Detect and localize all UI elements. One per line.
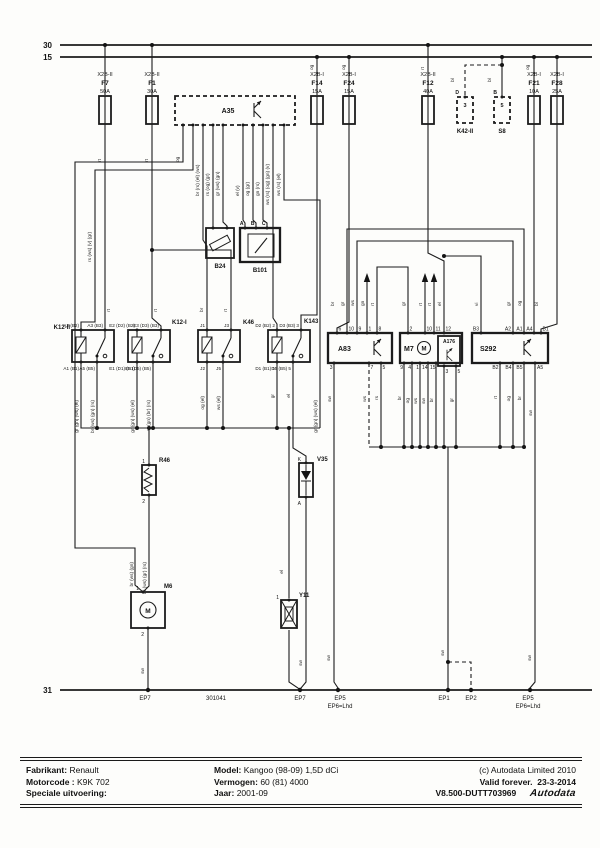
fuse-rating: 15A xyxy=(312,89,322,95)
pin-label: D3 (B3) 3 xyxy=(279,323,299,328)
component-id: M6 xyxy=(164,584,173,590)
pin-label: A1 xyxy=(516,327,522,333)
wire-color-label: el xyxy=(286,394,292,398)
pin-label: 1 xyxy=(142,459,145,465)
wire-color-label: og xyxy=(310,64,315,70)
wire-color-label: ws (rs) (og) (gn) (v) xyxy=(265,164,271,205)
wire-color-label: sw xyxy=(141,667,146,673)
fuse-id: F7 xyxy=(101,80,109,87)
version-text: V8.500-DUTT703969 xyxy=(435,788,516,798)
relay-box xyxy=(128,330,170,362)
pin-label: B5 xyxy=(516,365,522,371)
relay-box xyxy=(457,97,473,123)
pin-label: 2 xyxy=(142,499,145,505)
model-label: Model: xyxy=(214,765,241,775)
pin-label: 9 xyxy=(359,327,362,333)
pin-label: B1 xyxy=(543,327,549,333)
wire-color-label: vi (gn) (br) (rs) xyxy=(146,400,152,431)
ground-label: EP7 xyxy=(294,696,306,702)
wire-color-label: rs (ws) (v) (gr) xyxy=(87,231,93,262)
ground-label: EP5 xyxy=(334,696,346,702)
model-value: Kangoo (98-09) 1,5D dCi xyxy=(244,765,339,775)
wire-color-label: bl xyxy=(450,78,456,82)
pin-tag: D xyxy=(455,90,459,96)
wire-color-label: og xyxy=(342,64,347,70)
component-id: B101 xyxy=(253,268,268,274)
fuse-F28: X2B-I F28 25A xyxy=(550,72,564,124)
pin-label: E2 (D2) (B2) xyxy=(109,323,135,328)
pin-label: 4 xyxy=(408,365,411,371)
wire-color-label: br xyxy=(429,398,435,403)
resistor-zigzag-icon xyxy=(144,468,152,492)
pin-label: 1 xyxy=(136,586,139,592)
pin-label: 5 xyxy=(383,365,386,371)
wire-color-label: sw xyxy=(328,395,333,401)
pin-label: A5 xyxy=(537,365,543,371)
component-s292: S292 B3 A2 A1 A4 B1 B2 B4 B5 A5 xyxy=(472,327,549,372)
component-k42-ii: D 3 K42-II xyxy=(455,90,473,135)
pin-label: J3 xyxy=(224,323,229,328)
pin-label: A2 xyxy=(505,327,511,333)
wire-color-label: bl xyxy=(487,78,493,82)
pin-label: A xyxy=(240,221,244,227)
valve-x-icon xyxy=(281,600,297,628)
connector-label: X2B-I xyxy=(310,72,324,78)
fuse-rating: 50A xyxy=(100,89,110,95)
pin-label: 1 xyxy=(276,595,279,601)
wire xyxy=(81,362,320,690)
wire-color-label: og xyxy=(518,300,523,306)
component-id: S8 xyxy=(498,129,506,135)
fuse-rating: 25A xyxy=(552,89,562,95)
wire-color-label: br xyxy=(199,307,205,312)
component-r46: 1 2 R46 xyxy=(142,458,171,505)
component-s8: B 5 S8 xyxy=(493,90,510,135)
component-id: S292 xyxy=(480,346,496,353)
sensor-box xyxy=(206,228,234,258)
title-block-model: Model: Kangoo (98-09) 1,5D dCi Vermogen:… xyxy=(214,765,406,800)
fuse-id: F21 xyxy=(528,80,540,87)
wire-color-label: rt xyxy=(427,302,433,306)
wire-color-label: gr (gn) (ws) (el) xyxy=(74,400,80,433)
pin-label: A2 (B2) xyxy=(63,323,79,328)
ground-sublabel: EP6=Lhd xyxy=(516,704,541,710)
component-m6: M 1 2 M6 xyxy=(131,584,173,638)
pin-label: 2 xyxy=(141,632,144,638)
connector-label: X2B-II xyxy=(144,72,160,78)
fuse-F12: X2B-II F12 40A xyxy=(420,72,436,124)
pin-label: B4 xyxy=(505,365,511,371)
component-k143: K143 D2 (B2) 2 D3 (B3) 3 D1 (B1) 1 D5 (B… xyxy=(255,319,319,371)
ground-label: EP2 xyxy=(465,696,477,702)
component-id: Y11 xyxy=(299,593,310,599)
bus-15-label: 15 xyxy=(43,53,52,62)
valid-date: 23-3-2014 xyxy=(537,777,576,787)
component-id: B24 xyxy=(214,264,226,270)
wire-color-label: vi xyxy=(474,303,480,306)
pin-label: D5 (B5) 5 xyxy=(271,366,291,371)
control-unit-box xyxy=(175,96,295,125)
pin-label: A xyxy=(298,501,302,507)
component-id: K46 xyxy=(243,320,255,326)
wire-color-label: sw xyxy=(528,654,533,660)
diode-icon xyxy=(301,471,311,480)
pin-tag: B xyxy=(493,90,497,96)
wire-color-label: ws xyxy=(363,395,368,401)
fuse-F14: X2B-I F14 15A xyxy=(310,72,324,124)
pin-label: A3 (B3) xyxy=(87,323,103,328)
component-id: K12-I xyxy=(172,320,187,326)
wire-color-label: og xyxy=(406,398,411,404)
pin-label: B3 xyxy=(473,327,479,333)
pin-label: 6 xyxy=(339,327,342,333)
relay-box xyxy=(198,330,240,362)
wire-color-label: og xyxy=(176,156,181,162)
fabrikant-label: Fabrikant: xyxy=(26,765,67,775)
relay-coil-switch-icon xyxy=(272,330,303,362)
wire-color-label: el xyxy=(437,302,443,306)
pin-label: C xyxy=(262,221,266,227)
fuse-F1: X2B-II F1 30A xyxy=(144,72,160,124)
fuse-id: F14 xyxy=(311,80,323,87)
wire-color-label: rt xyxy=(370,302,376,306)
copyright-text: (c) Autodata Limited 2010 xyxy=(406,765,576,777)
connector-label: X2B-I xyxy=(342,72,356,78)
component-a83: A83 6 10 9 1 8 3 7 5 xyxy=(328,327,392,372)
ground-label: EP1 xyxy=(438,696,450,702)
component-id: A176 xyxy=(443,339,455,345)
pin-label: J1 xyxy=(200,323,205,328)
wire-color-label: br xyxy=(397,396,403,401)
pin-label: 1 xyxy=(416,365,419,371)
wire-color-label: ws xyxy=(351,300,356,306)
wire-color-label: sw xyxy=(299,659,304,665)
fuse-rating: 15A xyxy=(344,89,354,95)
wire-color-label: og (gr) xyxy=(245,181,251,196)
fuse-F21: X2B-I F21 10A xyxy=(527,72,541,124)
pin-label: A1 (B1) xyxy=(63,366,79,371)
fuse-rating: 40A xyxy=(423,89,433,95)
pin-label: D2 (B2) 2 xyxy=(255,323,275,328)
pin-label: 3 xyxy=(446,369,449,375)
wire-color-label: rt xyxy=(144,158,150,162)
relay-box xyxy=(72,330,114,362)
fuse-id: F12 xyxy=(422,80,434,87)
wire-color-label: sw xyxy=(529,409,534,415)
wire-color-label: gn xyxy=(361,300,366,306)
valid-label: Valid forever. xyxy=(480,777,533,787)
connector-label: X2B-I xyxy=(527,72,541,78)
fuse-F24: X2B-I F24 15A xyxy=(342,72,356,124)
wire-color-label: gr xyxy=(506,301,512,306)
component-id: K143 xyxy=(304,319,319,325)
motorcode-label: Motorcode : xyxy=(26,777,75,787)
wire-color-label: rt xyxy=(420,66,426,70)
bus-31-label: 31 xyxy=(43,686,52,695)
fuse-rating: 10A xyxy=(529,89,539,95)
pin-label: B xyxy=(251,221,255,227)
component-id: V35 xyxy=(317,457,328,463)
wire-color-label: br (rs) (el) (ws) xyxy=(195,164,201,196)
pin-label: J2 xyxy=(200,366,205,371)
relay-box xyxy=(268,330,310,362)
wire-color-label: ws (el) xyxy=(216,396,222,411)
ground-label: EP5 xyxy=(522,696,534,702)
vermogen-value: 60 (81) 4000 xyxy=(260,777,308,787)
wire-color-label: gr (gn) (ws) (el) xyxy=(130,400,136,433)
wire xyxy=(105,45,557,333)
pin-label: 12 xyxy=(446,327,452,333)
transistor-icon xyxy=(524,339,531,356)
component-id: A35 xyxy=(222,108,235,115)
jaar-value: 2001-09 xyxy=(237,788,268,798)
transistor-icon xyxy=(254,101,261,118)
jaar-label: Jaar: xyxy=(214,788,234,798)
wire-color-label: gr xyxy=(340,301,346,306)
component-k12-i: K12-I E2 (D2) (B2) E3 (D3) (B3) E1 (D1) … xyxy=(109,320,187,371)
transistor-icon xyxy=(447,348,452,361)
thermistor-icon xyxy=(210,235,231,251)
pin-label: 9 xyxy=(400,365,403,371)
pin-label: 5 xyxy=(500,103,503,109)
wire-color-label: br (ws) (gn) xyxy=(129,562,135,587)
component-m7: M7 M A176 2 10 11 12 9 4 1 14 15 3 5 xyxy=(400,327,462,376)
pin-label: 3 xyxy=(330,365,333,371)
wire-color-label: rs (og) (gr) xyxy=(205,173,211,196)
relay-coil-switch-icon xyxy=(76,330,107,362)
wire-color-label: rt xyxy=(493,395,499,399)
diagram-code: 301041 xyxy=(206,696,227,702)
relay-coil-switch-icon xyxy=(132,330,163,362)
wire-color-label: ws (rs) (el) xyxy=(276,173,282,196)
wire-color-label: br xyxy=(517,396,523,401)
wire-color-label: rt xyxy=(106,308,112,312)
pin-label: 14 xyxy=(422,365,428,371)
pin-label: 10 xyxy=(349,327,355,333)
wire-color-label: el xyxy=(279,570,285,574)
transistor-icon xyxy=(374,339,381,356)
switch-box xyxy=(494,97,510,123)
fuse-F7: X2B-II F7 50A xyxy=(97,72,113,124)
component-v35: K A V35 xyxy=(298,457,329,507)
wire-color-label: rt xyxy=(153,308,159,312)
pin-label: 8 xyxy=(379,327,382,333)
wire-color-label: rs xyxy=(374,395,380,400)
wire-color-label: gr (ws) (gn) xyxy=(215,171,221,196)
pin-label: A4 xyxy=(526,327,532,333)
motor-letter: M xyxy=(422,347,427,353)
component-b24: B24 xyxy=(206,228,234,270)
ground-sublabel: EP6=Lhd xyxy=(328,704,353,710)
fuse-id: F24 xyxy=(343,80,355,87)
pin-label: J5 xyxy=(216,366,221,371)
connector-label: X2B-II xyxy=(97,72,113,78)
wire-color-label: gr xyxy=(449,398,455,403)
wire-color-label: rt xyxy=(223,308,229,312)
title-block: Fabrikant: Renault Motorcode : K9K 702 S… xyxy=(20,757,582,808)
component-id: R46 xyxy=(159,458,171,464)
pin-label: 3 xyxy=(463,103,466,109)
pin-label: 5 xyxy=(458,369,461,375)
wire-color-label: br (ws) (gr) (rs) xyxy=(142,562,148,594)
ground-labels: EP7 EP7 EP5 EP6=Lhd EP1 EP2 EP5 EP6=Lhd … xyxy=(139,696,540,710)
connector-label: X2B-II xyxy=(420,72,436,78)
wire-color-label: br (ws) (gn) (rs) xyxy=(90,400,96,433)
wire-color-label: gr (gn) (ws) (el) xyxy=(313,400,319,433)
wire-color-label: og xyxy=(526,64,531,70)
fabrikant-value: Renault xyxy=(69,765,98,775)
component-b101: A B C B101 xyxy=(240,221,280,274)
sensor-element-icon xyxy=(255,238,267,253)
component-id: K42-II xyxy=(457,129,474,135)
component-a35: A35 xyxy=(175,96,295,125)
wire-color-label: el (v) xyxy=(235,185,241,196)
pin-label: 7 xyxy=(371,365,374,371)
arrow-up-icon xyxy=(364,273,437,282)
pin-label: 2 xyxy=(410,327,413,333)
wire xyxy=(334,229,535,690)
wire-color-label: gr xyxy=(401,301,407,306)
wire-color-label: bl xyxy=(534,302,540,306)
pin-label: 10 xyxy=(427,327,433,333)
pin-label: 1 xyxy=(369,327,372,333)
wire-color-label: rt xyxy=(418,302,424,306)
pin-label: E5 (D5) (B5) xyxy=(125,366,151,371)
relay-coil-switch-icon xyxy=(202,330,233,362)
wire-color-label: rt xyxy=(97,158,103,162)
component-k12-ii: K12-II A2 (B2) A3 (B3) A1 (B1) A5 (B5) xyxy=(54,323,114,371)
pin-label: E3 (D3) (B3) xyxy=(133,323,159,328)
fuse-rating: 30A xyxy=(147,89,157,95)
title-block-autodata: (c) Autodata Limited 2010 Valid forever.… xyxy=(406,765,576,800)
wire-color-label: og (el) xyxy=(200,396,206,410)
autodata-logo: Autodata xyxy=(529,788,576,800)
fuse-id: F1 xyxy=(148,80,156,87)
pin-label: B2 xyxy=(492,365,498,371)
title-block-vehicle: Fabrikant: Renault Motorcode : K9K 702 S… xyxy=(26,765,214,800)
wiring-diagram: 30 15 31 xyxy=(0,0,600,848)
wire-color-label: og xyxy=(507,396,512,402)
wire-color-label: sw xyxy=(327,654,332,660)
component-id: A83 xyxy=(338,346,351,353)
motorcode-value: K9K 702 xyxy=(77,777,110,787)
wire-color-label: sw xyxy=(422,397,427,403)
fuse-id: F28 xyxy=(551,80,563,87)
component-y11: 1 Y11 xyxy=(276,593,310,628)
bus-30-label: 30 xyxy=(43,41,52,50)
pin-label: A5 (B5) xyxy=(79,366,95,371)
wire-color-label: br xyxy=(330,301,336,306)
wire-color-label: gr xyxy=(270,394,276,399)
wire-color-label: ws xyxy=(414,397,419,403)
connector-label: X2B-I xyxy=(550,72,564,78)
component-id: M7 xyxy=(404,346,414,353)
pin-label: 11 xyxy=(436,327,441,333)
pin-label: 15 xyxy=(430,365,436,371)
wire-color-label: gn (rs) xyxy=(255,182,261,196)
ground-label: EP7 xyxy=(139,696,151,702)
vermogen-label: Vermogen: xyxy=(214,777,258,787)
wire-color-label: sw xyxy=(441,649,446,655)
motor-letter: M xyxy=(145,608,150,615)
speciale-label: Speciale uitvoering: xyxy=(26,788,107,798)
